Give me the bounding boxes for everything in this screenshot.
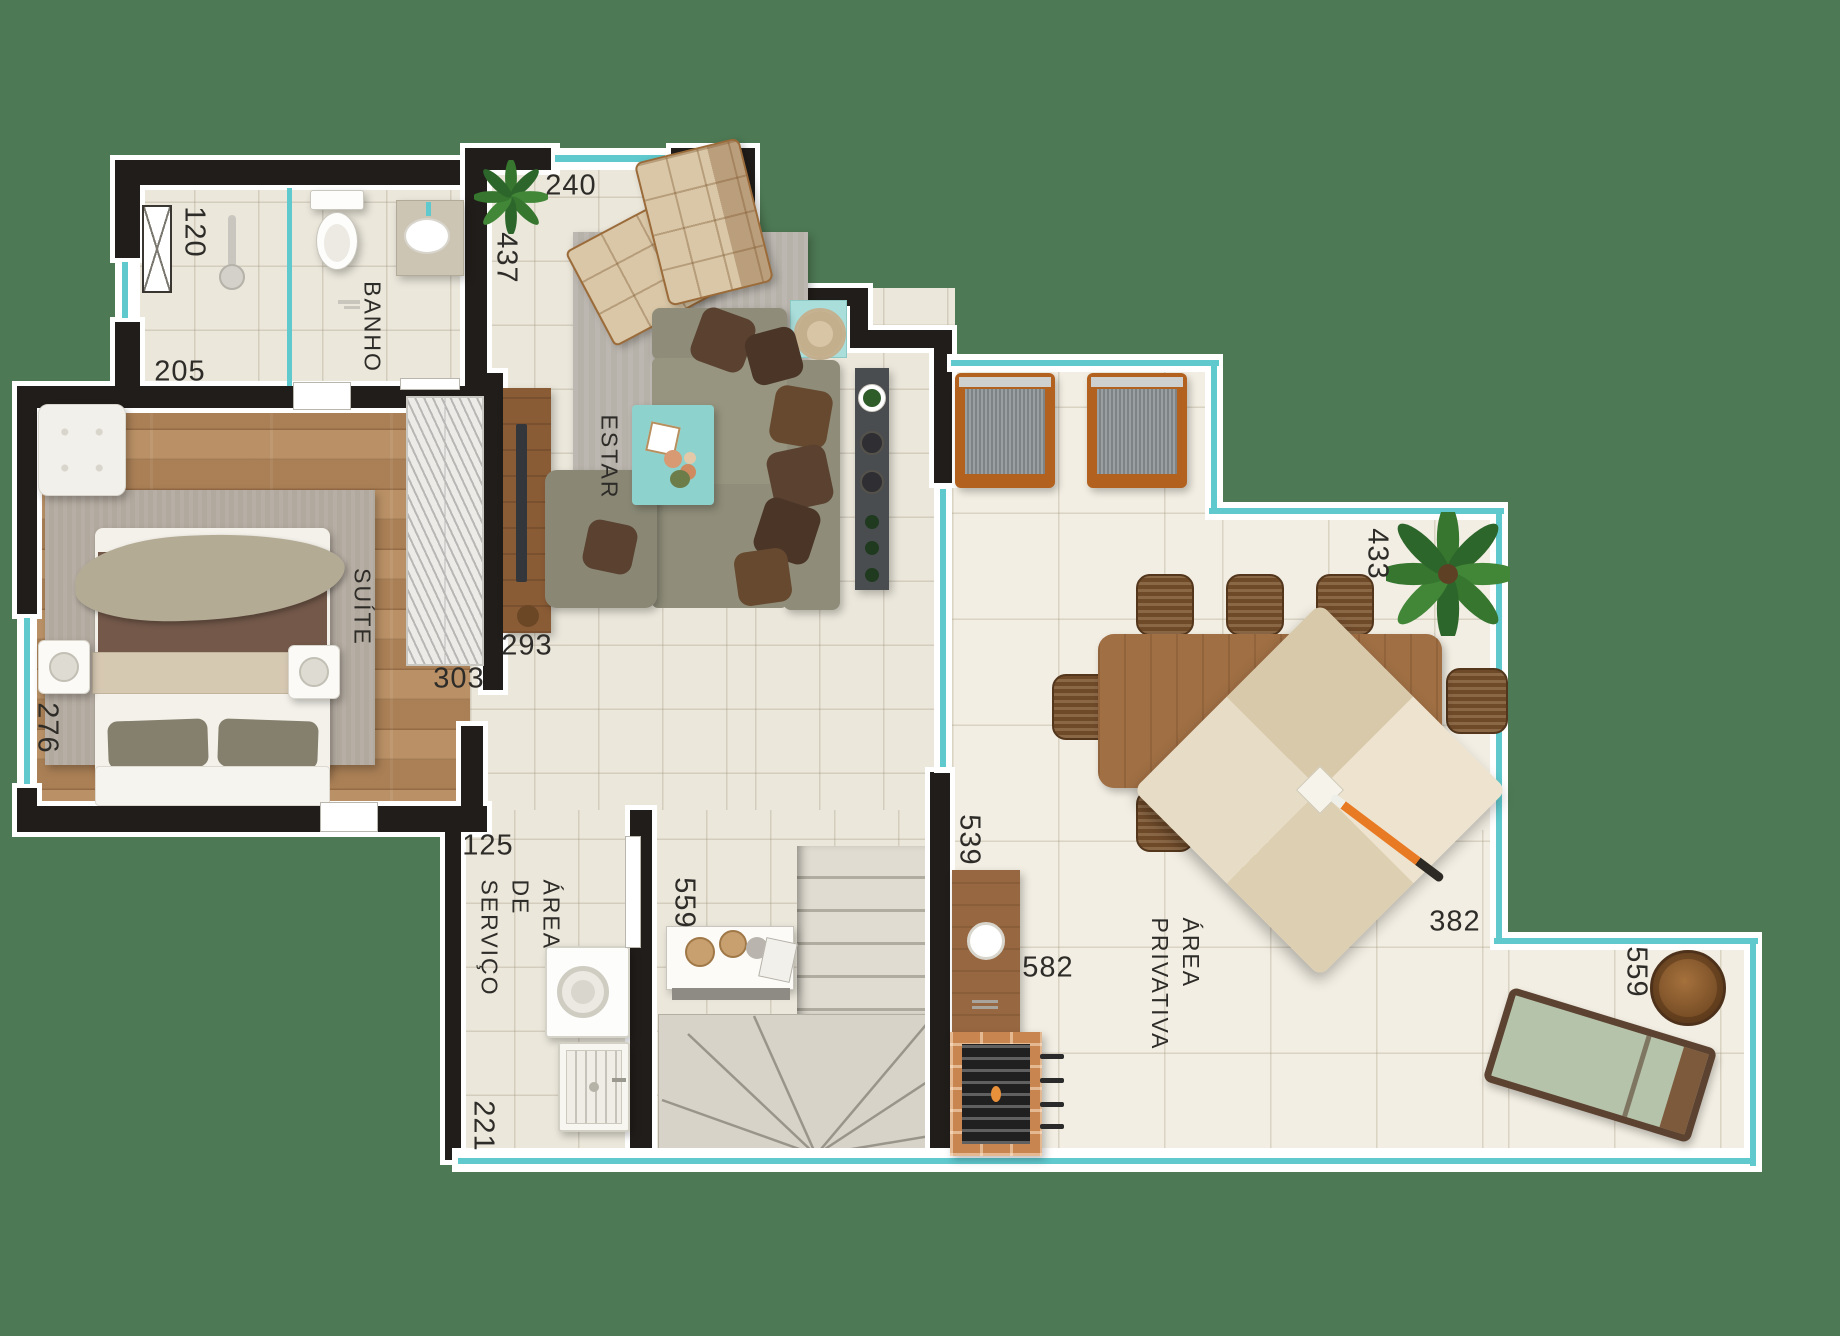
dim-shaft-label: 120 [178,206,211,257]
shower-glass [287,188,292,386]
cutlery [972,1000,998,1003]
floor-plan: 120 205 240 437 293 303 276 125 559 539 … [0,0,1840,1336]
armchair-mesh [965,389,1045,474]
greens [863,389,881,407]
dim-hall-label: 559 [668,877,701,928]
bottle [865,568,879,582]
service-sliding-door [625,836,641,948]
wicker-table [1650,950,1726,1026]
dim-terrace-south-label: 582 [1022,952,1073,985]
wall-segment [115,160,140,258]
dim-service-side-label: 221 [467,1100,500,1151]
dim-service-top-label: 125 [462,830,513,863]
sink-drain [589,1082,599,1092]
wall-segment [17,806,487,832]
room-service-label: ÁREADESERVIÇO [473,879,566,996]
glass-line [951,360,1219,366]
flowers [664,450,682,468]
armchair-mesh [1097,389,1177,474]
dining-chair [1136,574,1194,636]
duct-shaft [142,205,172,293]
glass-line [122,262,128,318]
sofa-pillow [733,547,794,608]
glass-line [1211,360,1217,514]
sink-faucet [426,202,431,216]
tv [516,424,527,582]
wardrobe [406,396,484,666]
basket [719,930,747,958]
bed-pillow-left [107,718,209,769]
bed-pillow-right [217,718,319,769]
dim-tv-wall-label: 293 [501,630,552,663]
sofa-pillow [580,517,639,576]
room-living-label: ESTAR [596,415,623,500]
terrace-plate [967,922,1005,960]
wall-segment [483,373,503,690]
dim-living-label: 437 [490,232,523,283]
glass-line [940,489,946,767]
cutlery [972,1006,998,1009]
basket [685,937,715,967]
toilet-seat [324,224,350,262]
stairs-winder [658,1014,930,1160]
lamp-right [299,657,329,687]
bowl [860,470,884,494]
flowers-leaves [670,470,690,488]
dim-terrace-west-label: 539 [953,814,986,865]
dim-wardrobe-label: 303 [433,663,484,696]
bottle [865,541,879,555]
dim-suite-label: 276 [31,702,64,753]
table-lamp [794,308,846,360]
skewer-handle [1040,1078,1064,1083]
dining-chair [1446,668,1508,734]
toilet-tank [310,190,364,210]
terrace-armchair [955,373,1055,488]
glass-line [458,1158,1756,1164]
dim-terrace-east-label: 382 [1429,906,1480,939]
dim-window-label: 240 [545,170,596,203]
skewer-handle [1040,1102,1064,1107]
sink-tap [612,1078,626,1082]
towel-bar [338,300,360,304]
dim-bathroom-label: 205 [154,356,205,389]
room-bathroom-label: BANHO [359,281,386,373]
dim-terrace-north-label: 433 [1361,528,1394,579]
skewer-handle [1040,1124,1064,1129]
bottle [865,515,879,529]
wall-segment [850,330,952,348]
sink-basin [404,218,450,254]
glass-line [1494,938,1758,944]
stairs-upper-flight [797,846,930,1014]
tv-panel [503,388,551,633]
dining-chair [1226,574,1284,636]
skewer-handle [1040,1054,1064,1059]
ottoman-bench [38,404,126,496]
bowl [860,431,884,455]
glass-line [1750,938,1756,1166]
bathroom-sliding-door [400,378,460,390]
wall-segment [17,386,37,614]
wall-segment [461,726,483,816]
lamp-left [49,652,79,682]
bed-headboard [95,766,330,806]
palm-plant-icon [1386,512,1510,636]
glass-line [24,618,30,784]
armchair-headrest [1091,377,1183,387]
wall-segment [930,772,950,1162]
wall-segment [115,160,460,185]
room-private-label: ÁREAPRIVATIVA [1144,917,1206,1050]
sofa-pillow [767,383,834,450]
suite-bathroom-door [293,382,351,410]
shower-head [219,264,245,290]
console-shelf [672,988,790,1000]
flowers [684,452,696,464]
armchair-headrest [959,377,1051,387]
wall-segment [115,322,140,392]
vase [517,605,539,627]
umbrella-hub [1296,766,1344,814]
washer-door-inner [571,980,595,1004]
plant-icon [474,160,548,234]
lounge-divider [1622,1035,1651,1117]
dim-nook-label: 559 [1620,946,1653,997]
room-suite-label: SUÍTE [349,568,376,646]
grill-flame [991,1086,1001,1102]
terrace-armchair [1087,373,1187,488]
wall-segment [445,832,461,1160]
suite-corridor-door [320,802,378,832]
shower-column [228,215,236,267]
